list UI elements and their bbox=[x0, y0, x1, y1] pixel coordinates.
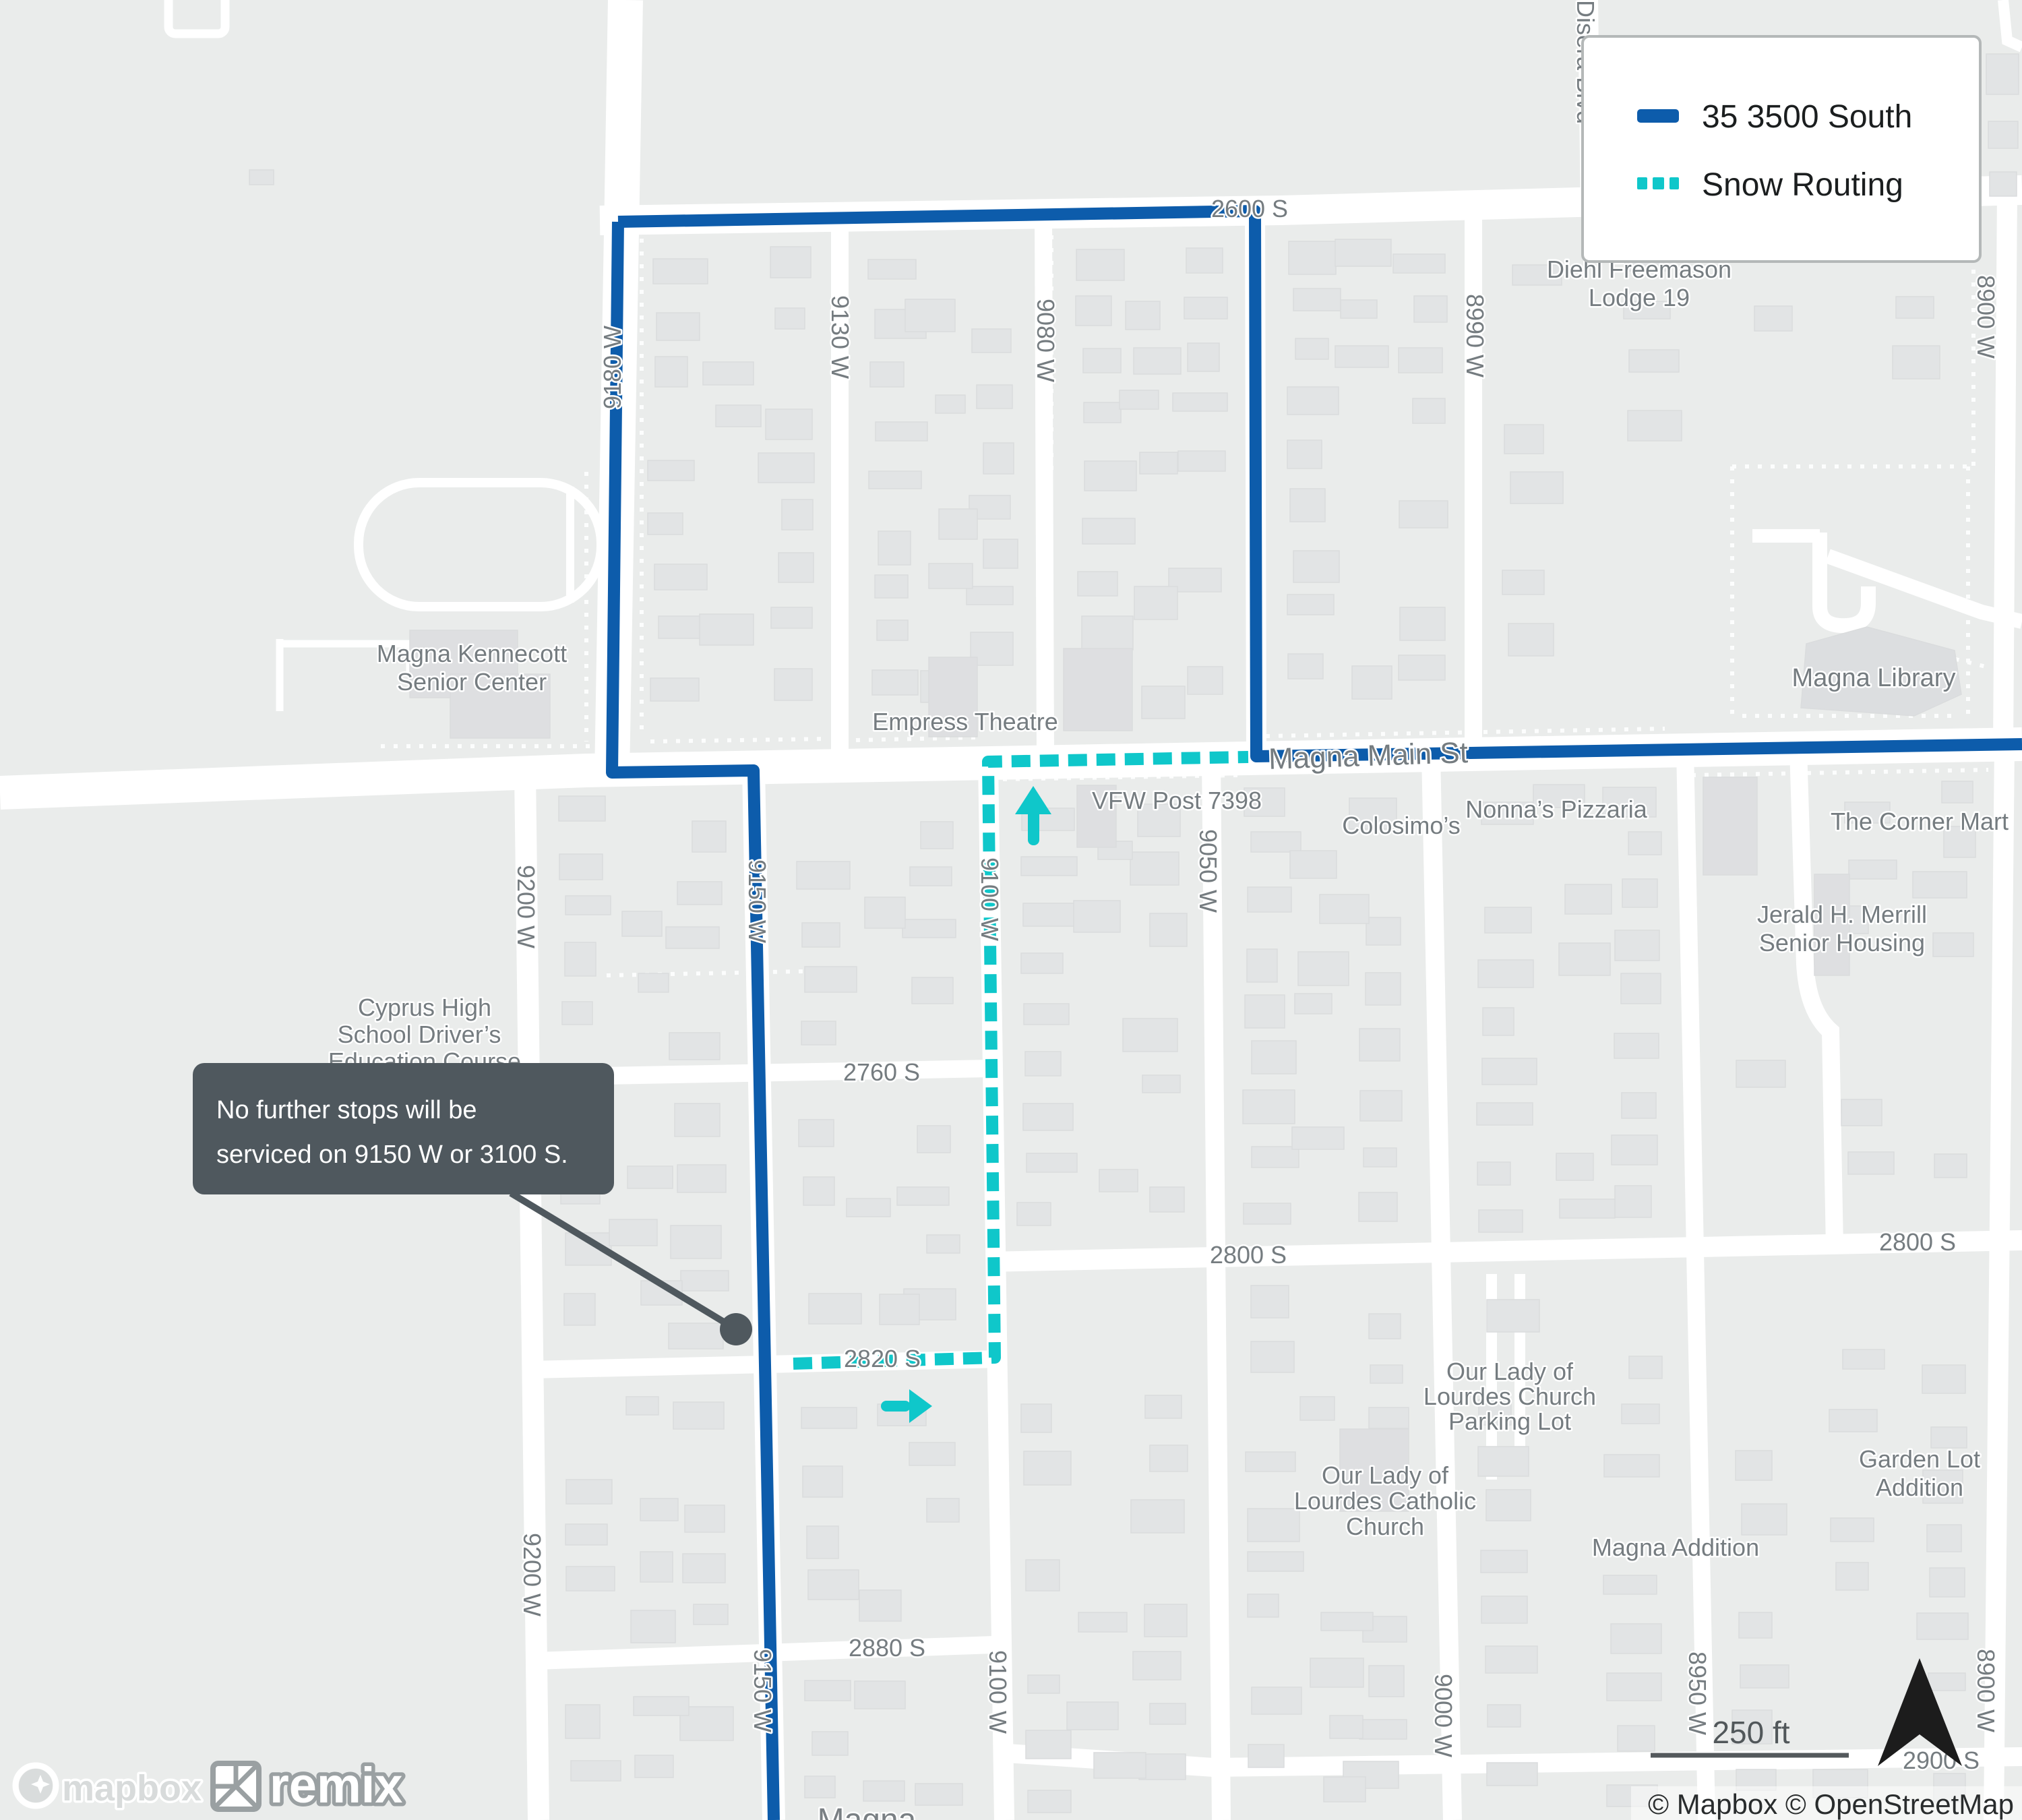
svg-text:Jerald H. Merrill: Jerald H. Merrill bbox=[1757, 901, 1927, 928]
svg-text:35 3500 South: 35 3500 South bbox=[1702, 99, 1912, 135]
svg-text:9130 W: 9130 W bbox=[826, 295, 854, 379]
svg-text:Senior Center: Senior Center bbox=[397, 668, 547, 696]
svg-text:8990 W: 8990 W bbox=[1461, 294, 1489, 377]
svg-text:mapbox: mapbox bbox=[62, 1768, 202, 1809]
svg-text:8950 W: 8950 W bbox=[1684, 1651, 1711, 1735]
svg-text:remix: remix bbox=[270, 1757, 402, 1813]
svg-text:2760 S: 2760 S bbox=[843, 1058, 920, 1086]
svg-text:School Driver’s: School Driver’s bbox=[338, 1021, 501, 1048]
svg-text:8900 W: 8900 W bbox=[1972, 275, 2000, 359]
svg-text:© Mapbox © OpenStreetMap: © Mapbox © OpenStreetMap bbox=[1648, 1788, 2014, 1820]
svg-text:Magna: Magna bbox=[818, 1802, 917, 1820]
svg-text:Parking Lot: Parking Lot bbox=[1448, 1407, 1571, 1435]
svg-text:Senior Housing: Senior Housing bbox=[1759, 929, 1925, 957]
svg-text:Lourdes Church: Lourdes Church bbox=[1423, 1383, 1596, 1410]
svg-text:2880 S: 2880 S bbox=[849, 1634, 925, 1662]
svg-text:9080 W: 9080 W bbox=[1032, 299, 1060, 382]
svg-text:2820 S: 2820 S bbox=[844, 1345, 921, 1372]
svg-text:9200 W: 9200 W bbox=[518, 1533, 546, 1616]
svg-text:2800 S: 2800 S bbox=[1210, 1241, 1287, 1269]
svg-text:Magna Library: Magna Library bbox=[1792, 664, 1956, 692]
svg-text:Addition: Addition bbox=[1876, 1474, 1963, 1501]
svg-text:Empress Theatre: Empress Theatre bbox=[872, 708, 1058, 735]
svg-text:9000 W: 9000 W bbox=[1430, 1674, 1457, 1757]
svg-text:9150 W: 9150 W bbox=[743, 859, 771, 943]
svg-text:9100 W: 9100 W bbox=[976, 857, 1004, 941]
svg-text:Church: Church bbox=[1346, 1513, 1424, 1540]
svg-text:9180 W: 9180 W bbox=[599, 326, 626, 409]
svg-text:Magna Kennecott: Magna Kennecott bbox=[377, 640, 567, 667]
svg-text:No further stops will be: No further stops will be bbox=[216, 1096, 477, 1124]
svg-text:2900 S: 2900 S bbox=[1903, 1747, 1980, 1774]
svg-text:Our Lady of: Our Lady of bbox=[1322, 1461, 1449, 1489]
svg-text:Lodge 19: Lodge 19 bbox=[1589, 284, 1690, 311]
svg-text:Colosimo’s: Colosimo’s bbox=[1342, 812, 1460, 839]
svg-text:9150 W: 9150 W bbox=[749, 1649, 776, 1732]
svg-text:Magna Main St: Magna Main St bbox=[1268, 736, 1468, 776]
svg-text:9200 W: 9200 W bbox=[512, 865, 540, 948]
svg-text:Lourdes Catholic: Lourdes Catholic bbox=[1294, 1487, 1476, 1515]
svg-text:Magna Addition: Magna Addition bbox=[1592, 1534, 1759, 1561]
svg-text:2600 S: 2600 S bbox=[1211, 195, 1288, 222]
svg-text:250 ft: 250 ft bbox=[1712, 1715, 1789, 1750]
svg-text:The Corner Mart: The Corner Mart bbox=[1831, 808, 2009, 835]
svg-text:Garden Lot: Garden Lot bbox=[1859, 1445, 1980, 1473]
svg-text:VFW Post 7398: VFW Post 7398 bbox=[1092, 787, 1262, 814]
svg-text:Snow Routing: Snow Routing bbox=[1702, 167, 1903, 203]
svg-text:9050 W: 9050 W bbox=[1194, 829, 1222, 913]
svg-text:9100 W: 9100 W bbox=[984, 1650, 1012, 1734]
svg-text:serviced on 9150 W or 3100 S.: serviced on 9150 W or 3100 S. bbox=[216, 1141, 568, 1169]
svg-text:2800 S: 2800 S bbox=[1879, 1228, 1956, 1256]
svg-text:Our Lady of: Our Lady of bbox=[1446, 1358, 1574, 1385]
svg-text:Nonna’s Pizzaria: Nonna’s Pizzaria bbox=[1465, 795, 1647, 823]
svg-text:Cyprus High: Cyprus High bbox=[358, 994, 491, 1021]
svg-text:8900 W: 8900 W bbox=[1972, 1649, 2000, 1732]
